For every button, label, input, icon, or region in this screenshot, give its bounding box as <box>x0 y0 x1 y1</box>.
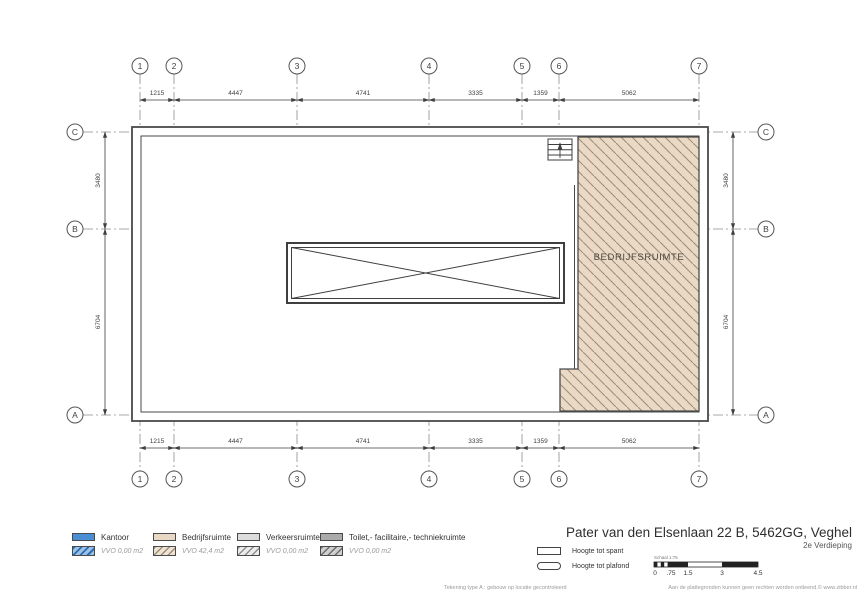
legend-item-kantoor: Kantoor VVO 0,00 m2 <box>72 531 143 559</box>
scale-bar-svg: Schaal 1:75 0 .75 1.5 3 4.5 <box>650 553 770 579</box>
svg-text:5: 5 <box>520 61 525 71</box>
svg-text:3: 3 <box>720 570 724 577</box>
legend-hatch-swatch-kantoor <box>72 546 95 556</box>
svg-text:3480: 3480 <box>723 173 730 188</box>
footer-note-left: Tekening type A : gebouw op locatie geco… <box>444 585 567 591</box>
dimension-labels-bottom: 1215 4447 4741 3335 1359 5062 <box>150 438 637 445</box>
svg-text:5: 5 <box>520 474 525 484</box>
legend-swatch-toilet <box>320 533 343 541</box>
title-block: Pater van den Elsenlaan 22 B, 5462GG, Ve… <box>566 525 852 550</box>
legend-swatch-verkeersruimte <box>237 533 260 541</box>
svg-text:6: 6 <box>557 474 562 484</box>
floor-subtitle: 2e Verdieping <box>566 541 852 550</box>
page-title: Pater van den Elsenlaan 22 B, 5462GG, Ve… <box>566 525 852 540</box>
grid-bubbles-left: C B A <box>67 124 83 423</box>
scale-bar-blocks <box>654 562 758 567</box>
legend-label: Bedrijfsruimte <box>182 533 231 542</box>
room-label: BEDRIJFSRUIMTE <box>594 252 685 263</box>
svg-text:4741: 4741 <box>356 90 371 97</box>
legend-label: Toilet,- facilitaire,- techniekruimte <box>349 533 465 542</box>
legend-swatch-kantoor <box>72 533 95 541</box>
svg-text:6704: 6704 <box>95 314 102 329</box>
svg-text:2: 2 <box>172 61 177 71</box>
svg-text:.75: .75 <box>666 570 675 577</box>
svg-text:0: 0 <box>653 570 657 577</box>
scale-bar: Schaal 1:75 0 .75 1.5 3 4.5 <box>650 553 770 584</box>
svg-text:3: 3 <box>295 474 300 484</box>
svg-text:3335: 3335 <box>468 90 483 97</box>
hoogte-plafond-label: Hoogte tot plafond <box>572 563 629 570</box>
legend-hatch-swatch-verkeersruimte <box>237 546 260 556</box>
svg-text:B: B <box>763 224 769 234</box>
floor-plan-page: BEDRIJFSRUIMTE <box>0 0 865 608</box>
legend-vvo: VVO 42,4 m2 <box>182 548 224 555</box>
svg-text:1: 1 <box>138 61 143 71</box>
legend-label: Verkeersruimte <box>266 533 320 542</box>
svg-text:A: A <box>763 410 769 420</box>
svg-text:3: 3 <box>295 61 300 71</box>
legend-vvo: VVO 0,00 m2 <box>101 548 143 555</box>
svg-text:7: 7 <box>697 61 702 71</box>
dimension-labels-top: 1215 4447 4741 3335 1359 5062 <box>150 90 637 97</box>
legend-label: Kantoor <box>101 533 129 542</box>
svg-text:C: C <box>72 127 78 137</box>
svg-text:4: 4 <box>427 474 432 484</box>
svg-text:6: 6 <box>557 61 562 71</box>
svg-text:6704: 6704 <box>723 314 730 329</box>
legend-swatch-bedrijfsruimte <box>153 533 176 541</box>
grid-bubbles-bottom: 1 2 3 4 5 6 7 <box>132 471 707 487</box>
svg-text:1.5: 1.5 <box>683 570 692 577</box>
grid-bubbles-top: 1 2 3 4 5 6 7 <box>132 58 707 74</box>
legend-vvo: VVO 0,00 m2 <box>349 548 391 555</box>
svg-text:C: C <box>763 127 769 137</box>
legend-item-toilet: Toilet,- facilitaire,- techniekruimte VV… <box>320 531 465 559</box>
svg-text:3335: 3335 <box>468 438 483 445</box>
scale-label: Schaal 1:75 <box>654 555 678 560</box>
legend-hatch-swatch-bedrijfsruimte <box>153 546 176 556</box>
svg-text:A: A <box>72 410 78 420</box>
svg-text:1215: 1215 <box>150 438 165 445</box>
legend-item-verkeersruimte: Verkeersruimte VVO 0,00 m2 <box>237 531 320 559</box>
svg-text:2: 2 <box>172 474 177 484</box>
svg-text:1215: 1215 <box>150 90 165 97</box>
footer-note-right: Aan de plattegronden kunnen geen rechten… <box>668 585 857 591</box>
hoogte-spant-symbol <box>537 547 561 555</box>
legend-vvo: VVO 0,00 m2 <box>266 548 308 555</box>
svg-text:4: 4 <box>427 61 432 71</box>
svg-text:3480: 3480 <box>95 173 102 188</box>
svg-text:1: 1 <box>138 474 143 484</box>
svg-text:7: 7 <box>697 474 702 484</box>
svg-text:5062: 5062 <box>622 90 637 97</box>
svg-text:1359: 1359 <box>533 90 548 97</box>
svg-text:1359: 1359 <box>533 438 548 445</box>
grid-bubbles-right: C B A <box>758 124 774 423</box>
stairs-icon <box>548 139 572 160</box>
legend-item-bedrijfsruimte: Bedrijfsruimte VVO 42,4 m2 <box>153 531 231 559</box>
void-cross <box>287 243 564 303</box>
hoogte-plafond-symbol <box>537 562 561 570</box>
svg-text:5062: 5062 <box>622 438 637 445</box>
floor-plan-svg: BEDRIJFSRUIMTE <box>0 0 865 520</box>
svg-text:4.5: 4.5 <box>753 570 762 577</box>
svg-text:4741: 4741 <box>356 438 371 445</box>
svg-text:4447: 4447 <box>228 90 243 97</box>
scale-tick-labels: 0 .75 1.5 3 4.5 <box>653 570 763 577</box>
svg-text:B: B <box>72 224 78 234</box>
hatched-room-bedrijfsruimte <box>560 137 699 411</box>
svg-text:4447: 4447 <box>228 438 243 445</box>
legend-hatch-swatch-toilet <box>320 546 343 556</box>
